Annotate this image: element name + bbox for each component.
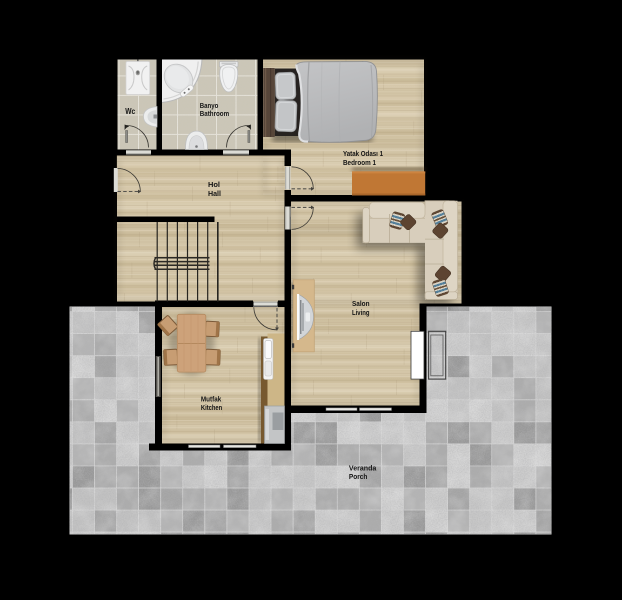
svg-text:Yatak Odası 1: Yatak Odası 1 bbox=[343, 149, 383, 158]
svg-text:Wc: Wc bbox=[125, 107, 136, 116]
svg-text:Living: Living bbox=[352, 308, 370, 317]
svg-text:Kitchen: Kitchen bbox=[201, 403, 222, 412]
svg-text:Porch: Porch bbox=[349, 472, 368, 481]
svg-text:Salon: Salon bbox=[352, 299, 370, 308]
svg-text:Mutfak: Mutfak bbox=[201, 395, 221, 404]
svg-text:Hol: Hol bbox=[208, 180, 220, 189]
svg-text:Hall: Hall bbox=[208, 189, 221, 198]
svg-text:Bedroom 1: Bedroom 1 bbox=[343, 158, 376, 167]
svg-text:Bathroom: Bathroom bbox=[200, 109, 229, 118]
svg-text:Veranda: Veranda bbox=[349, 464, 377, 473]
